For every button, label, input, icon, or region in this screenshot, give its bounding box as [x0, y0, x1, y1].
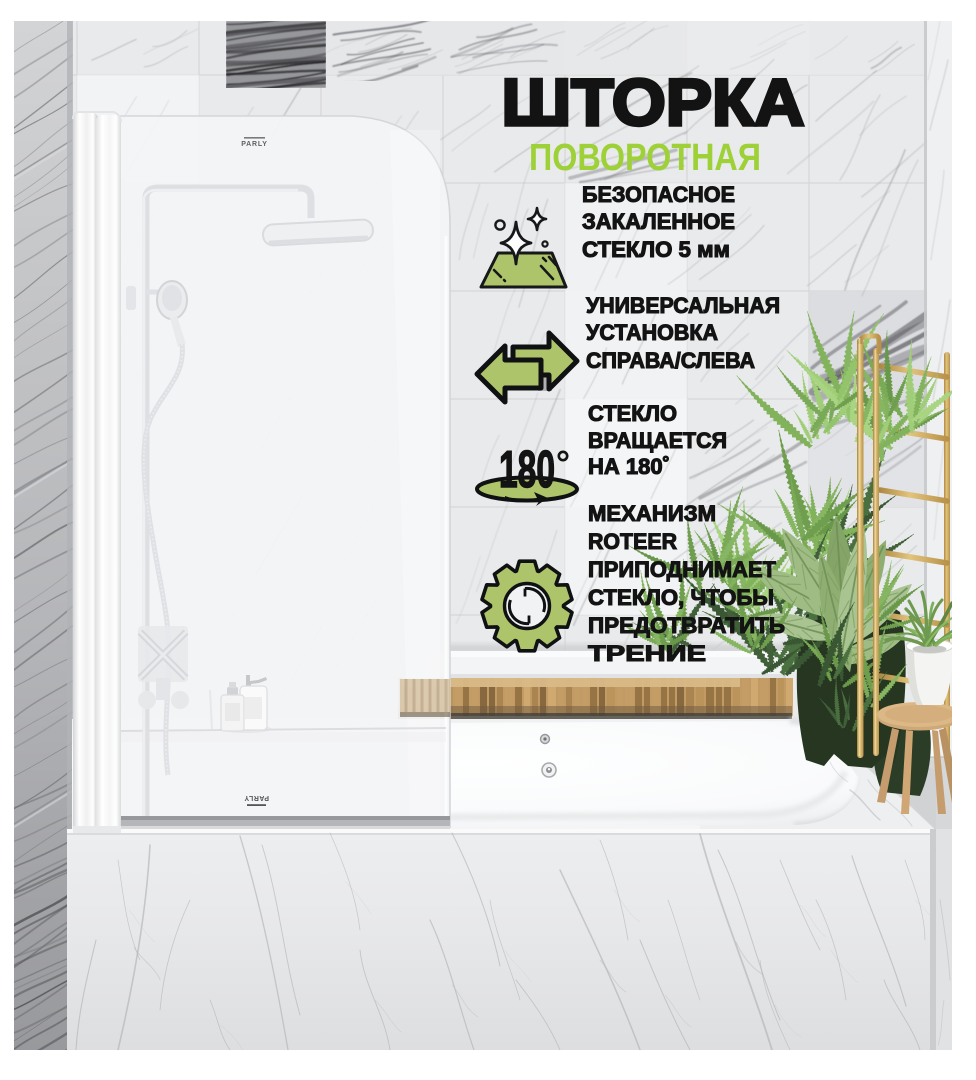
svg-text:СПРАВА/СЛЕВА: СПРАВА/СЛЕВА — [586, 348, 755, 373]
svg-text:УСТАНОВКА: УСТАНОВКА — [586, 320, 718, 345]
svg-text:СТЕКЛО: СТЕКЛО — [588, 401, 677, 426]
svg-text:МЕХАНИЗМ: МЕХАНИЗМ — [588, 501, 716, 526]
svg-text:ШТОРКА: ШТОРКА — [502, 65, 805, 139]
svg-text:ПОВОРОТНАЯ: ПОВОРОТНАЯ — [529, 137, 761, 179]
svg-text:ЗАКАЛЕННОЕ: ЗАКАЛЕННОЕ — [582, 209, 735, 234]
svg-text:СТЕКЛО, ЧТОБЫ: СТЕКЛО, ЧТОБЫ — [588, 585, 774, 610]
svg-text:НА 180˚: НА 180˚ — [588, 454, 670, 479]
svg-text:БЕЗОПАСНОЕ: БЕЗОПАСНОЕ — [582, 182, 735, 207]
svg-text:ПРЕДОТВРАТИТЬ: ПРЕДОТВРАТИТЬ — [588, 613, 785, 638]
svg-text:УНИВЕРСАЛЬНАЯ: УНИВЕРСАЛЬНАЯ — [586, 293, 780, 318]
svg-text:180: 180 — [499, 441, 555, 499]
svg-text:ПРИПОДНИМАЕТ: ПРИПОДНИМАЕТ — [588, 557, 777, 582]
svg-text:ТРЕНИЕ: ТРЕНИЕ — [588, 641, 706, 666]
svg-text:ВРАЩАЕТСЯ: ВРАЩАЕТСЯ — [588, 428, 727, 453]
svg-text:ROTEER: ROTEER — [588, 529, 677, 554]
svg-text:PARLY: PARLY — [244, 794, 269, 801]
svg-text:СТЕКЛО 5 мм: СТЕКЛО 5 мм — [582, 237, 730, 262]
svg-text:PARLY: PARLY — [241, 141, 268, 148]
